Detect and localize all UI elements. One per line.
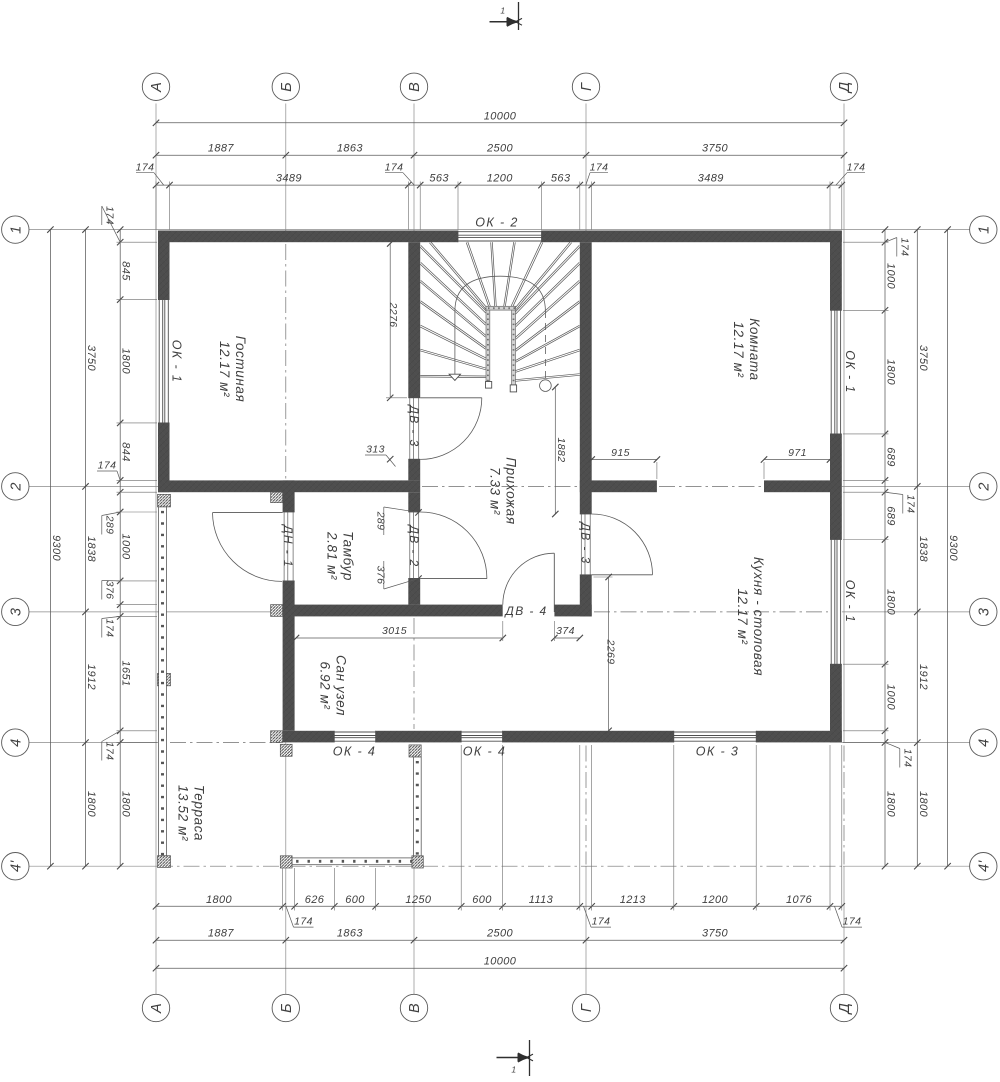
svg-text:3750: 3750 (85, 345, 97, 372)
svg-text:Комната: Комната (747, 318, 762, 380)
svg-text:626: 626 (305, 894, 325, 906)
svg-text:289: 289 (375, 511, 387, 531)
svg-text:Д: Д (837, 1003, 853, 1016)
svg-text:ОК - 4: ОК - 4 (463, 745, 507, 759)
svg-text:2500: 2500 (486, 928, 514, 940)
svg-text:1863: 1863 (337, 143, 364, 155)
svg-text:1000: 1000 (120, 533, 132, 560)
svg-text:1: 1 (977, 225, 993, 233)
svg-text:ДВ - 3: ДВ - 3 (407, 403, 421, 447)
svg-text:1912: 1912 (917, 664, 929, 690)
svg-text:1800: 1800 (206, 894, 233, 906)
svg-text:174: 174 (592, 916, 611, 928)
svg-text:563: 563 (429, 173, 449, 185)
svg-text:1000: 1000 (885, 263, 897, 290)
svg-text:2500: 2500 (486, 143, 514, 155)
svg-text:2276: 2276 (387, 302, 399, 328)
svg-text:174: 174 (899, 238, 911, 257)
svg-text:600: 600 (472, 894, 492, 906)
svg-text:Г: Г (579, 1003, 595, 1012)
svg-text:174: 174 (294, 916, 313, 928)
svg-text:1912: 1912 (85, 664, 97, 690)
svg-text:3489: 3489 (276, 173, 302, 185)
svg-text:2: 2 (9, 482, 25, 491)
svg-text:А: А (149, 82, 165, 93)
svg-text:13.52 м²: 13.52 м² (176, 785, 191, 841)
svg-text:Гостиная: Гостиная (233, 336, 248, 403)
svg-text:174: 174 (385, 162, 404, 174)
svg-text:1651: 1651 (120, 660, 132, 686)
svg-text:3: 3 (9, 608, 25, 616)
svg-text:12.17 м²: 12.17 м² (217, 341, 232, 397)
svg-text:3750: 3750 (702, 928, 729, 940)
svg-text:3750: 3750 (702, 143, 729, 155)
svg-text:10000: 10000 (484, 956, 517, 968)
svg-text:3750: 3750 (917, 345, 929, 372)
svg-text:1800: 1800 (120, 791, 132, 818)
svg-text:3489: 3489 (698, 173, 724, 185)
svg-text:1863: 1863 (337, 928, 364, 940)
svg-text:1838: 1838 (917, 536, 929, 563)
svg-text:10000: 10000 (484, 110, 517, 122)
svg-text:1076: 1076 (786, 894, 813, 906)
svg-text:1250: 1250 (405, 894, 432, 906)
svg-text:3: 3 (977, 608, 993, 616)
svg-text:374: 374 (556, 625, 575, 637)
svg-text:Б: Б (279, 82, 295, 92)
svg-text:1800: 1800 (917, 791, 929, 818)
svg-text:1: 1 (511, 1065, 516, 1075)
svg-text:ДВ - 2: ДВ - 2 (407, 523, 421, 567)
svg-text:ОК - 1: ОК - 1 (843, 580, 857, 624)
svg-text:1000: 1000 (885, 684, 897, 711)
svg-text:ДВ - 4: ДВ - 4 (503, 604, 547, 618)
svg-text:2: 2 (977, 482, 993, 491)
svg-text:1887: 1887 (208, 143, 235, 155)
svg-text:313: 313 (366, 444, 385, 456)
svg-text:174: 174 (98, 460, 117, 472)
svg-text:1800: 1800 (85, 791, 97, 818)
svg-text:ОК - 4: ОК - 4 (333, 745, 377, 759)
svg-text:2.81 м²: 2.81 м² (325, 531, 340, 580)
svg-text:4': 4' (9, 860, 25, 872)
svg-text:1200: 1200 (702, 894, 729, 906)
svg-text:Г: Г (579, 82, 595, 91)
svg-text:Тамбур: Тамбур (341, 531, 356, 581)
svg-text:289: 289 (104, 515, 116, 535)
svg-text:4: 4 (9, 738, 25, 746)
svg-text:174: 174 (905, 495, 917, 514)
svg-text:1800: 1800 (120, 348, 132, 375)
svg-text:376: 376 (104, 581, 116, 600)
svg-text:563: 563 (551, 173, 571, 185)
svg-text:А: А (149, 1003, 165, 1014)
svg-text:9300: 9300 (50, 535, 62, 562)
svg-text:1: 1 (9, 225, 25, 233)
svg-text:376: 376 (375, 566, 387, 585)
svg-text:В: В (407, 1003, 423, 1013)
svg-text:174: 174 (104, 619, 116, 638)
svg-text:1200: 1200 (487, 173, 514, 185)
svg-text:ОК - 3: ОК - 3 (696, 745, 740, 759)
svg-text:1113: 1113 (529, 894, 554, 906)
svg-text:ОК - 1: ОК - 1 (843, 350, 857, 394)
svg-text:174: 174 (590, 162, 609, 174)
svg-text:4: 4 (977, 738, 993, 746)
svg-text:1882: 1882 (555, 438, 567, 463)
svg-text:1: 1 (500, 6, 505, 16)
svg-text:845: 845 (120, 261, 132, 281)
svg-text:4': 4' (977, 860, 993, 872)
svg-text:689: 689 (885, 447, 897, 467)
svg-text:174: 174 (136, 162, 155, 174)
svg-text:ДВ - 3: ДВ - 3 (579, 520, 593, 564)
svg-text:ОК - 1: ОК - 1 (169, 340, 183, 384)
svg-text:ДН - 1: ДН - 1 (281, 523, 295, 568)
svg-text:1800: 1800 (885, 791, 897, 818)
svg-text:689: 689 (885, 506, 897, 526)
svg-text:3015: 3015 (382, 625, 407, 637)
svg-text:174: 174 (843, 916, 862, 928)
svg-text:1838: 1838 (85, 536, 97, 563)
svg-text:600: 600 (345, 894, 365, 906)
svg-text:Сан узел: Сан узел (334, 655, 349, 716)
svg-text:12.17 м²: 12.17 м² (731, 321, 746, 377)
svg-text:7.33 м²: 7.33 м² (488, 467, 503, 515)
svg-text:Д: Д (837, 81, 853, 94)
svg-text:2269: 2269 (605, 639, 617, 665)
svg-text:174: 174 (104, 206, 116, 225)
svg-text:174: 174 (104, 742, 116, 761)
svg-text:1800: 1800 (885, 359, 897, 386)
svg-text:6.92 м²: 6.92 м² (318, 662, 333, 710)
svg-text:9300: 9300 (947, 535, 959, 562)
svg-text:Прихожая: Прихожая (504, 457, 519, 524)
svg-text:1800: 1800 (885, 589, 897, 616)
svg-text:12.17 м²: 12.17 м² (735, 588, 750, 644)
svg-text:Терраса: Терраса (192, 785, 207, 841)
svg-text:В: В (407, 82, 423, 92)
svg-text:ОК - 2: ОК - 2 (475, 216, 519, 230)
svg-text:1887: 1887 (208, 928, 235, 940)
svg-text:174: 174 (902, 749, 914, 768)
svg-text:174: 174 (847, 162, 866, 174)
svg-text:915: 915 (611, 447, 630, 459)
svg-text:971: 971 (788, 447, 807, 459)
svg-text:Б: Б (279, 1003, 295, 1013)
svg-text:Кухня - столовая: Кухня - столовая (751, 557, 766, 676)
svg-text:844: 844 (120, 442, 132, 462)
svg-text:1213: 1213 (620, 894, 647, 906)
